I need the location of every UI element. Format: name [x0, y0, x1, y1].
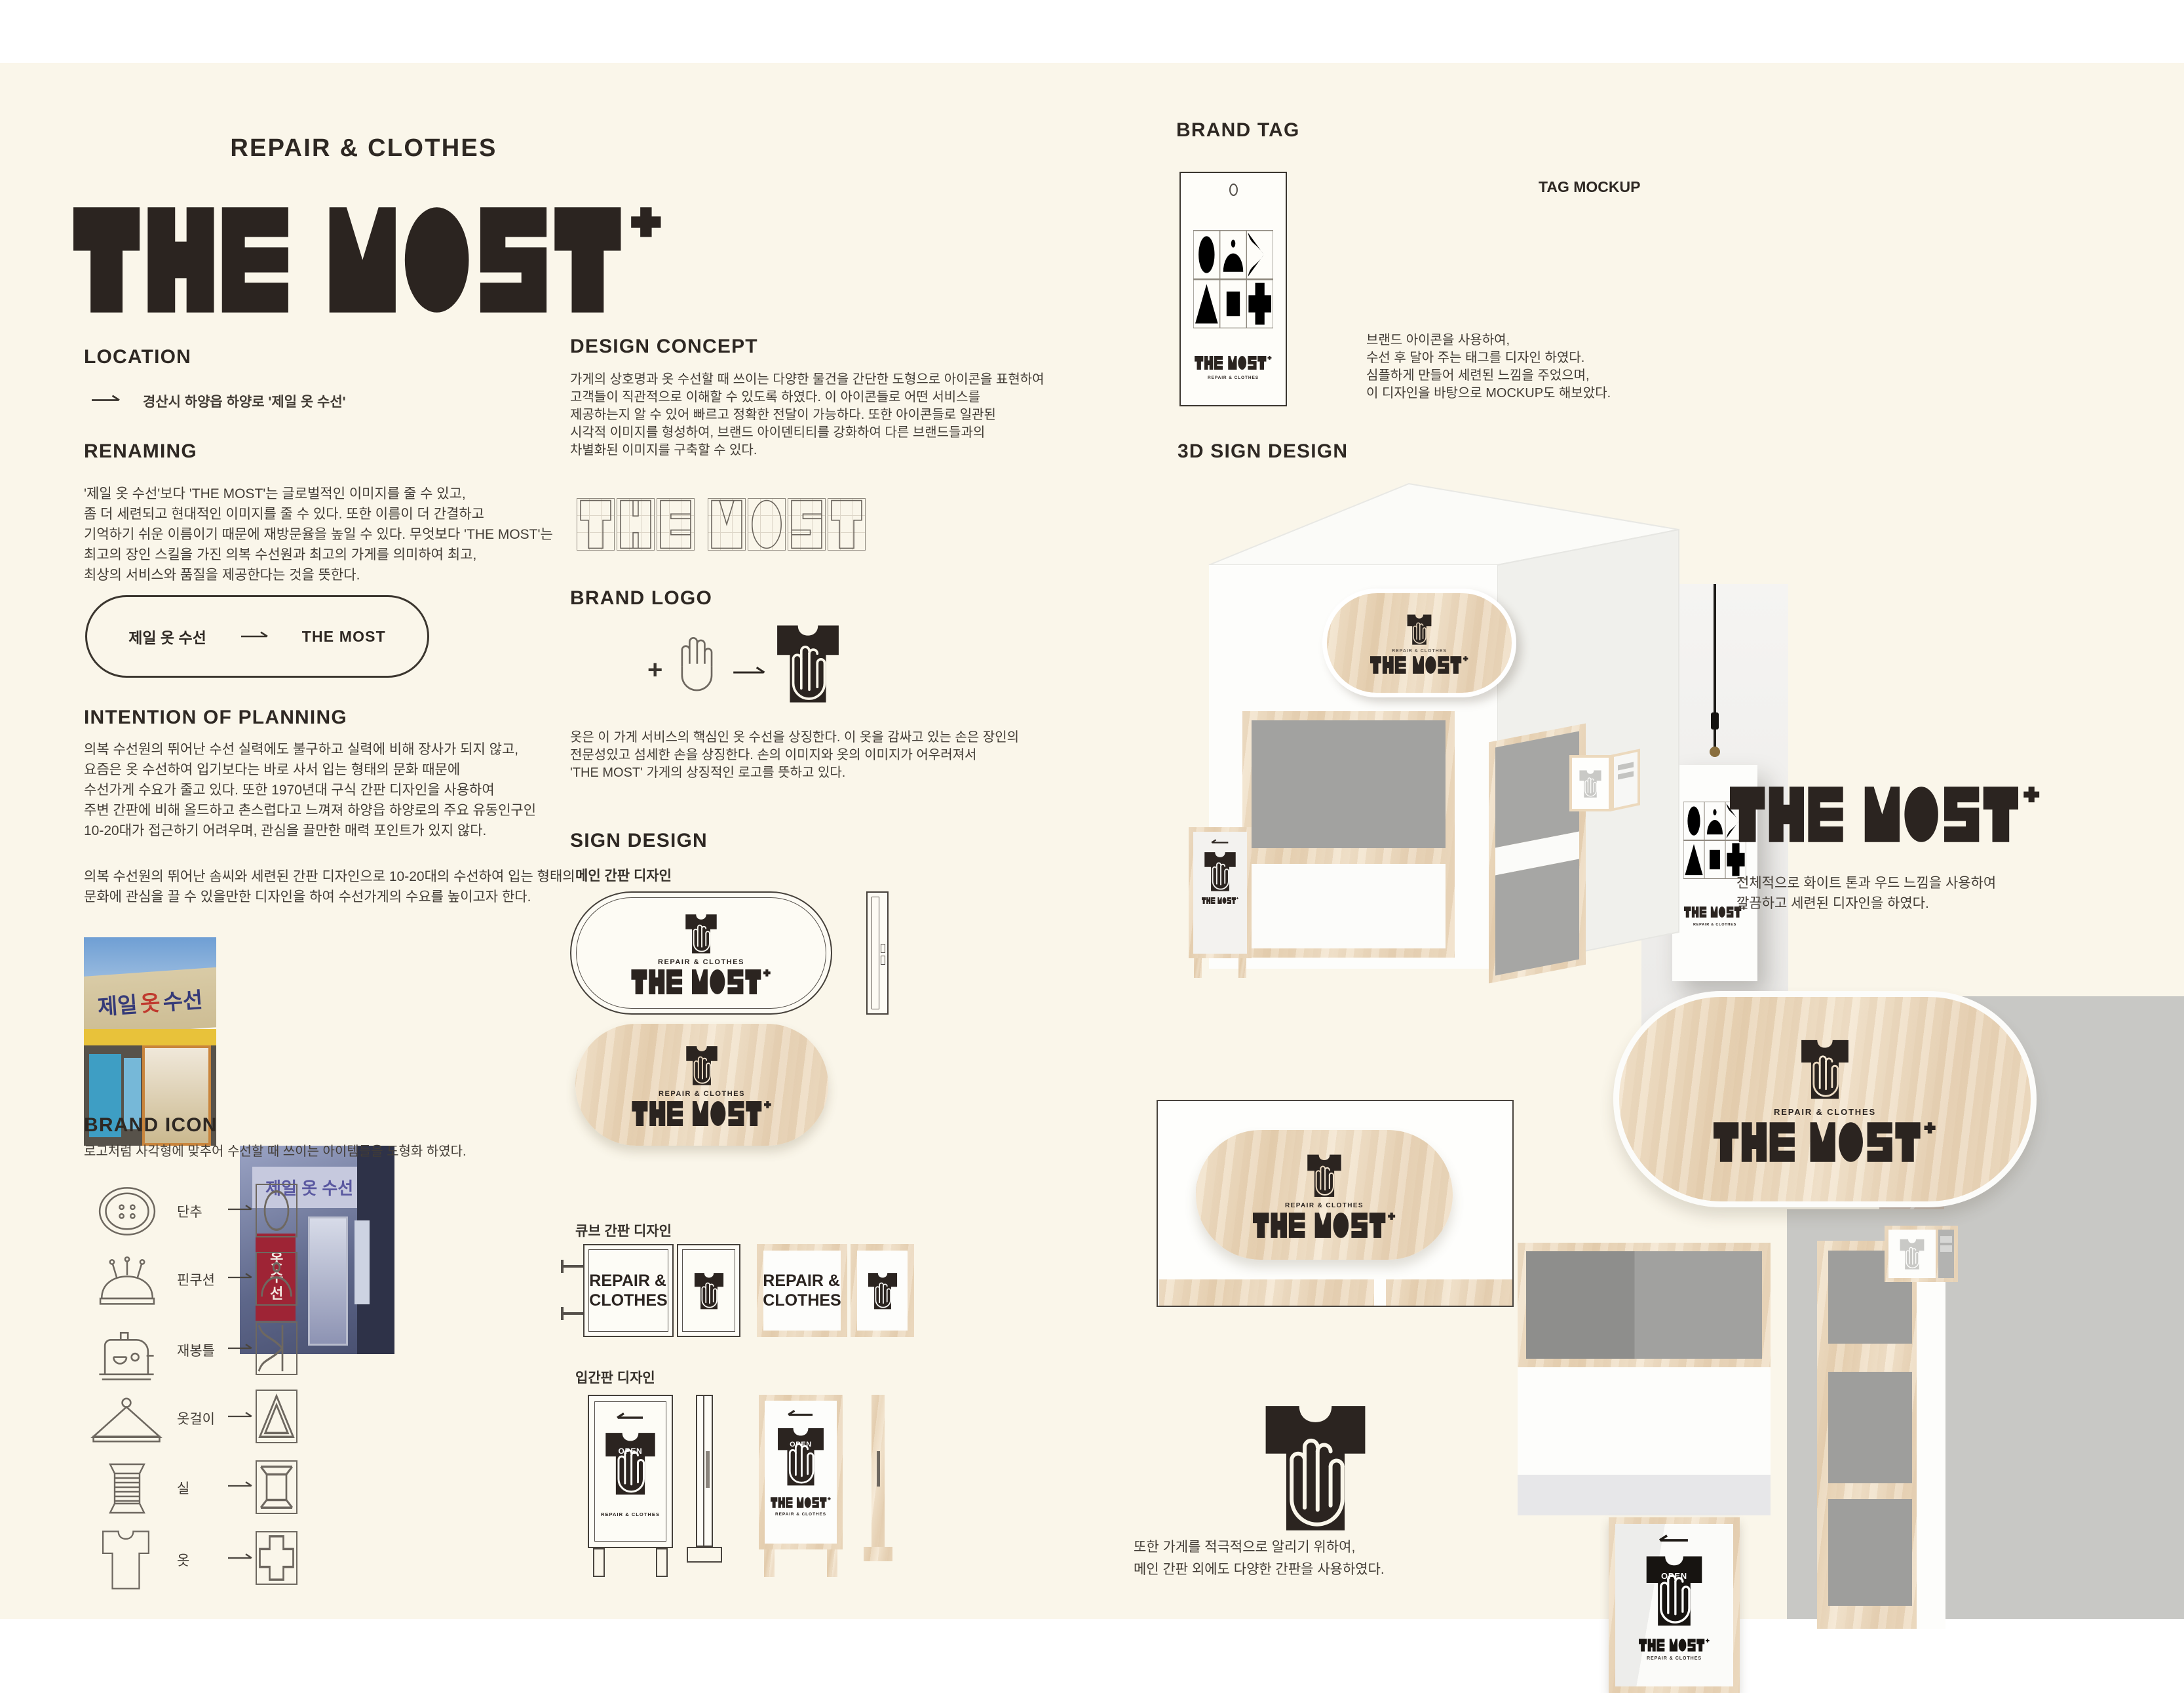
- stand-sign-leg: [593, 1548, 605, 1577]
- tshirt-outline-icon: [582, 634, 630, 698]
- card-wood-band: [1386, 1279, 1512, 1306]
- closing-caption: 또한 가게를 적극적으로 알리기 위하여, 메인 간판 외에도 다양한 간판을 …: [1134, 1536, 1385, 1581]
- stand-sign-outline: OPEN REPAIR & CLOTHES: [588, 1395, 673, 1548]
- renaming-line: 좀 더 세련되고 현대적인 이미지를 줄 수 있다. 또한 이름이 더 간결하고: [84, 504, 553, 524]
- stand-sign-leg: [764, 1549, 775, 1577]
- clothes-tile-icon: [256, 1531, 297, 1585]
- location-arrow-icon: [84, 393, 127, 407]
- letter-tile-t2: [828, 498, 866, 551]
- intention-line: 수선가게 수요가 줄고 있다. 또한 1970년대 구식 간판 디자인을 사용하…: [84, 780, 536, 800]
- elevation-sign-oval: REPAIR & CLOTHES: [1613, 991, 2037, 1207]
- section-intention-title: INTENTION OF PLANNING: [84, 707, 347, 729]
- cube-mount-bracket: [561, 1260, 564, 1273]
- store-sign-oval-3d: REPAIR & CLOTHES: [1322, 589, 1516, 697]
- sign-logotype: [631, 1101, 773, 1126]
- letter-tile-t: [577, 498, 615, 551]
- arrow-icon: [223, 1203, 257, 1215]
- clothes-icon: [93, 1528, 159, 1590]
- intention-line: 주변 간판에 비해 올드하고 촌스럽다고 느껴져 하양읍 하양로의 주요 유동인…: [84, 800, 536, 821]
- stand-sign-leg: [827, 1549, 837, 1577]
- brand-logomark-large: [1261, 1399, 1370, 1534]
- letter-tile-s: [788, 498, 826, 551]
- cube-sign-wood-logo-box: [851, 1244, 914, 1337]
- main-sign-inner-line: [576, 897, 826, 1009]
- open-logomark: [1644, 1553, 1704, 1627]
- arrow-icon: [223, 1342, 257, 1354]
- concept-line: 시각적 이미지를 형성하여, 브랜드 아이덴티티를 강화하여 다른 브랜드들과의: [570, 424, 1044, 442]
- arrow-icon: [223, 1480, 257, 1492]
- pill-arrow-icon: [234, 630, 275, 643]
- section-brand-tag-title: BRAND TAG: [1176, 119, 1300, 142]
- elevation-wall: [1518, 1367, 1771, 1475]
- arrow-left-icon: [615, 1411, 645, 1424]
- sign-logomark: [867, 1271, 898, 1310]
- stand-sign-leg: [1194, 958, 1202, 978]
- open-text: OPEN: [619, 1447, 643, 1456]
- open-logomark: [603, 1430, 657, 1496]
- cube-sign-wood-text-box: REPAIR & CLOTHES: [757, 1244, 847, 1337]
- brand-logo-paragraph: 옷은 이 가게 서비스의 핵심인 옷 수선을 상징한다. 이 옷을 감싸고 있는…: [570, 729, 1019, 782]
- stand-sign-side-base: [687, 1547, 722, 1563]
- sign-logomark: [1306, 1152, 1343, 1198]
- concept-line: 제공하는지 알 수 있어 빠르고 정확한 전달이 가능하다. 또한 아이콘들로 …: [570, 406, 1044, 424]
- arrow-icon: [223, 1411, 257, 1422]
- stand-sign-side-view: [696, 1395, 713, 1547]
- the-most-logotype: [73, 207, 663, 313]
- hand-outline-icon: [676, 624, 717, 705]
- arrow-left-icon: [1657, 1533, 1691, 1547]
- hanger-icon: [88, 1395, 165, 1446]
- elevation-door-jamb: [1917, 1241, 1945, 1629]
- sign-tagline: REPAIR & CLOTHES: [775, 1512, 826, 1517]
- card-wood-band: [1159, 1279, 1374, 1306]
- stand-sign-leg: [656, 1548, 668, 1577]
- icon-label-sewing: 재봉틀: [177, 1341, 215, 1361]
- renaming-line: 최상의 서비스와 품질을 제공한다는 것을 뜻한다.: [84, 565, 553, 585]
- rename-pill: 제일 옷 수선 THE MOST: [85, 595, 429, 678]
- brand-tag-line: 브랜드 아이콘을 사용하여,: [1366, 332, 1611, 349]
- sign-logotype: [771, 1497, 831, 1508]
- cube-mount-bracket: [562, 1265, 584, 1268]
- tag-mockup-label: TAG MOCKUP: [1539, 178, 1640, 196]
- concept-line: 고객들이 직관적으로 이해할 수 있도록 하였다. 이 아이콘들로 어떤 서비스…: [570, 389, 1044, 406]
- concept-line: 차별화된 이미지를 구축할 수 있다.: [570, 442, 1044, 459]
- main-sign-outline: REPAIR & CLOTHES: [570, 891, 832, 1015]
- card-sign-oval: REPAIR & CLOTHES: [1196, 1130, 1453, 1260]
- location-address: 경산시 하양읍 하양로 '제일 옷 수선': [143, 392, 346, 412]
- tag-hole: [1229, 184, 1238, 196]
- intention-line: 문화에 관심을 끌 수 있을만한 디자인을 하여 수선가게의 수요를 높이고자 …: [84, 887, 575, 907]
- open-text: OPEN: [790, 1441, 812, 1449]
- photo1-sign-text: 옷: [139, 985, 161, 1018]
- sign-logotype: [1714, 1122, 1936, 1162]
- icon-label-thread: 실: [177, 1479, 189, 1499]
- section-sign-design-title: SIGN DESIGN: [570, 830, 708, 852]
- sign-logomark: [1799, 1037, 1850, 1100]
- renaming-line: 최고의 장인 스킬을 가진 의복 수선원과 최고의 가게를 의미하여 최고,: [84, 545, 553, 565]
- cube-mount-bracket: [561, 1307, 564, 1320]
- intention-line: 10-20대가 접근하기 어려우며, 관심을 끌만한 매력 포인트가 있지 않다…: [84, 821, 536, 841]
- poster-page: REPAIR & CLOTHES LOCATION 경산시 하양읍 하양로 '제…: [0, 0, 2184, 1693]
- sign-logotype: [1370, 656, 1468, 674]
- section-brand-logo-title: BRAND LOGO: [570, 587, 712, 610]
- sign-tagline: REPAIR & CLOTHES: [659, 1090, 745, 1098]
- brand-logo-line: 옷은 이 가게 서비스의 핵심인 옷 수선을 상징한다. 이 옷을 감싸고 있는…: [570, 729, 1019, 747]
- elevation-stand-sign: OPEN REPAIR & CLOTHES: [1609, 1517, 1740, 1693]
- tag-tagline: REPAIR & CLOTHES: [1208, 376, 1259, 380]
- sign-logomark: [1203, 850, 1237, 892]
- arrow-left-icon: [786, 1409, 815, 1421]
- brand-icon-subtitle: 로고처럼 사각형에 맞추어 수선할 때 쓰이는 아이템들을 도형화 하였다.: [84, 1142, 467, 1162]
- pincushion-tile-icon: [256, 1252, 297, 1306]
- elevation-window: [1518, 1243, 1771, 1367]
- renaming-paragraph: '제일 옷 수선'보다 'THE MOST'는 글로벌적인 이미지를 줄 수 있…: [84, 484, 553, 585]
- main-sign-side-view: [866, 891, 889, 1015]
- section-design-concept-title: DESIGN CONCEPT: [570, 336, 758, 358]
- photo1-sign-text: 제일: [96, 987, 138, 1022]
- sign-logotype: [1639, 1639, 1710, 1652]
- sign-logomark: [1406, 613, 1432, 646]
- open-text: OPEN: [1661, 1571, 1687, 1581]
- photo1-sign-text: 수선: [162, 983, 204, 1017]
- elevation-floor: [1518, 1475, 1771, 1515]
- store-cube-sign-3d: [1569, 755, 1611, 811]
- cube-sign-logo-box: [677, 1244, 740, 1337]
- icon-label-pincushion: 핀쿠션: [177, 1270, 215, 1291]
- elevation-door: [1817, 1241, 1917, 1629]
- design-concept-paragraph: 가게의 상호명과 옷 수선할 때 쓰이는 다양한 물건을 간단한 도형으로 아이…: [570, 371, 1044, 459]
- design-note-line: 전체적으로 화이트 톤과 우드 느낌을 사용하여: [1736, 873, 1996, 893]
- button-icon: [93, 1182, 161, 1240]
- brand-logo-line: 'THE MOST' 가게의 상징적인 로고를 뜻하고 있다.: [570, 764, 1019, 782]
- concept-line: 가게의 상호명과 옷 수선할 때 쓰이는 다양한 물건을 간단한 도형으로 아이…: [570, 371, 1044, 389]
- letter-tile-h: [617, 498, 655, 551]
- section-renaming-title: RENAMING: [84, 440, 197, 463]
- sign-tagline: REPAIR & CLOTHES: [1647, 1656, 1702, 1661]
- letter-tile-m: [708, 498, 746, 551]
- stand-sign-label: 입간판 디자인: [575, 1367, 655, 1387]
- design-note: 전체적으로 화이트 톤과 우드 느낌을 사용하여 깔끔하고 세련된 디자인을 하…: [1736, 873, 1996, 914]
- pincushion-icon: [94, 1256, 160, 1312]
- sign-logomark: [685, 1044, 719, 1086]
- brand-tag-line: 이 디자인을 바탕으로 MOCKUP도 해보았다.: [1366, 385, 1611, 402]
- intention-line: 의복 수선원의 뛰어난 수선 실력에도 불구하고 실력에 비해 장사가 되지 않…: [84, 739, 536, 760]
- plus-sign: +: [647, 655, 662, 685]
- icon-label-clothes: 옷: [177, 1551, 189, 1571]
- section-3d-sign-title: 3D SIGN DESIGN: [1178, 440, 1348, 463]
- brand-logo-line: 전문성있고 섬세한 손을 상징한다. 손의 이미지와 옷의 이미지가 어우러져서: [570, 747, 1019, 764]
- brand-tag-design: REPAIR & CLOTHES: [1179, 172, 1287, 406]
- stand-sign-wood-side-view: [872, 1395, 885, 1547]
- store-cube-sign-side: [1611, 749, 1640, 811]
- arrow-icon: [733, 665, 767, 680]
- arrow-icon: [223, 1272, 257, 1283]
- stand-sign-wood-base: [864, 1547, 892, 1561]
- store-window-3d: [1242, 711, 1455, 958]
- closing-line: 또한 가게를 적극적으로 알리기 위하여,: [1134, 1536, 1385, 1559]
- spool-tile-icon: [256, 1460, 297, 1514]
- elevation-cube-sign: [1885, 1226, 1958, 1282]
- sign-tagline: REPAIR & CLOTHES: [1392, 649, 1447, 653]
- thread-spool-icon: [101, 1458, 153, 1521]
- intention-paragraph-2: 의복 수선원의 뛰어난 솜씨와 세련된 간판 디자인으로 10-20대의 수선하…: [84, 866, 575, 907]
- pill-new-name: THE MOST: [302, 628, 386, 646]
- open-logomark: [776, 1425, 826, 1487]
- icon-label-hanger: 옷걸이: [177, 1409, 215, 1430]
- main-sign-label: 메인 간판 디자인: [575, 865, 672, 885]
- stand-sign-wood: OPEN REPAIR & CLOTHES: [759, 1395, 843, 1549]
- sign-tagline: REPAIR & CLOTHES: [1285, 1202, 1364, 1209]
- brand-logomark: [775, 621, 841, 705]
- hanger-tile-icon: [256, 1390, 297, 1443]
- renaming-line: 기억하기 쉬운 이름이기 때문에 재방문율을 높일 수 있다. 무엇보다 'TH…: [84, 524, 553, 545]
- arrow-icon: [223, 1552, 257, 1564]
- letter-tile-e: [657, 498, 695, 551]
- section-brand-icon-title: BRAND ICON: [84, 1114, 218, 1137]
- letter-tile-o: [748, 498, 786, 551]
- pill-old-name: 제일 옷 수선: [128, 625, 206, 648]
- arrow-left-icon: [1210, 838, 1230, 847]
- brand-tagline: REPAIR & CLOTHES: [131, 134, 596, 163]
- store-stand-sign-3d: [1189, 827, 1252, 958]
- intention-paragraph-1: 의복 수선원의 뛰어난 수선 실력에도 불구하고 실력에 비해 장사가 되지 않…: [84, 739, 536, 841]
- faint-logomark: [1579, 769, 1602, 798]
- faint-logomark: [1899, 1237, 1925, 1270]
- brand-tag-line: 심플하게 만들어 세련된 느낌을 주었으며,: [1366, 367, 1611, 385]
- sewing-tile-icon: [256, 1321, 297, 1375]
- cube-sign-line: CLOTHES: [763, 1291, 841, 1310]
- cube-sign-label: 큐브 간판 디자인: [575, 1220, 672, 1240]
- sewing-machine-icon: [90, 1323, 163, 1383]
- brand-tag-paragraph: 브랜드 아이콘을 사용하여, 수선 후 달아 주는 태그를 디자인 하였다. 심…: [1366, 332, 1611, 402]
- sign-tagline: REPAIR & CLOTHES: [601, 1511, 660, 1517]
- tag-tagline: REPAIR & CLOTHES: [1693, 923, 1736, 927]
- design-note-line: 깔끔하고 세련된 디자인을 하였다.: [1736, 893, 1996, 914]
- icon-label-button: 단추: [177, 1202, 202, 1222]
- the-most-logotype-large: [1730, 787, 2040, 842]
- tag-icon-grid: [1193, 230, 1273, 328]
- sign-logotype: [1253, 1213, 1396, 1238]
- tag-logotype: [1195, 356, 1272, 370]
- main-sign-wood: REPAIR & CLOTHES: [575, 1024, 828, 1146]
- sign-logotype: [1202, 897, 1238, 904]
- cube-sign-line: REPAIR &: [763, 1271, 841, 1291]
- closing-line: 메인 간판 외에도 다양한 간판을 사용하였다.: [1134, 1559, 1385, 1581]
- cube-sign-text-box: REPAIR & CLOTHES: [583, 1244, 674, 1337]
- sign-tagline: REPAIR & CLOTHES: [1774, 1107, 1876, 1117]
- brand-tag-line: 수선 후 달아 주는 태그를 디자인 하였다.: [1366, 349, 1611, 367]
- button-tile-icon: [256, 1184, 297, 1237]
- stand-sign-leg: [1238, 958, 1246, 978]
- intention-line: 요즘은 옷 수선하여 입기보다는 바로 사서 입는 형태의 문화 때문에: [84, 760, 536, 780]
- cube-mount-bracket: [562, 1312, 584, 1315]
- section-location-title: LOCATION: [84, 346, 191, 368]
- intention-line: 의복 수선원의 뛰어난 솜씨와 세련된 간판 디자인으로 10-20대의 수선하…: [84, 866, 575, 887]
- renaming-line: '제일 옷 수선'보다 'THE MOST'는 글로벌적인 이미지를 줄 수 있…: [84, 484, 553, 504]
- storefront-mockup-card: REPAIR & CLOTHES: [1157, 1100, 1514, 1307]
